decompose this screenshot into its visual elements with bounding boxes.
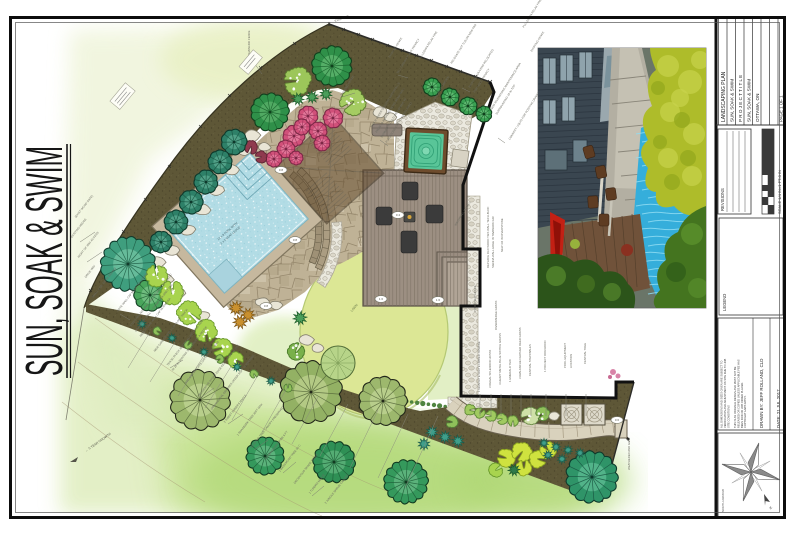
svg-text:3 AVALANCHE FEATHER REED GRASS: 3 AVALANCHE FEATHER REED GRASS [518, 327, 522, 379]
svg-text:DRAWN BY: JEFF ROLLAND, CLD: DRAWN BY: JEFF ROLLAND, CLD [759, 359, 764, 428]
svg-text:REVISIONS: REVISIONS [720, 188, 725, 211]
svg-text:SUN, SOAK & SWIM: SUN, SOAK & SWIM [16, 146, 74, 376]
svg-text:LANDSCAPING PLAN: LANDSCAPING PLAN [721, 71, 727, 122]
svg-text:POOL EQUIPMENT: POOL EQUIPMENT [563, 343, 567, 368]
svg-text:CENTRAL STEPPABLES: CENTRAL STEPPABLES [528, 344, 532, 376]
svg-text:1 EMERALD YEW: 1 EMERALD YEW [508, 359, 512, 382]
svg-text:SUN, SOAK & SWIM: SUN, SOAK & SWIM [747, 79, 752, 122]
svg-text:OTTAWA, ON: OTTAWA, ON [755, 94, 760, 122]
svg-text:REPLACE OLD WOOD TIES WALL TEC: REPLACE OLD WOOD TIES WALL TECH-BLOC [486, 207, 490, 268]
svg-text:THIS IS AN ORIGINAL DESIGN AND: THIS IS AN ORIGINAL DESIGN AND MUST NOT … [733, 366, 737, 428]
svg-text:1 GRAPHITE-WHITE LIMBER JASMIN: 1 GRAPHITE-WHITE LIMBER JASMINE [477, 341, 481, 392]
svg-text:1 6: 1 6 [436, 298, 441, 302]
svg-text:BEEN PAID OR JOB ORDER PLACED.: BEEN PAID OR JOB ORDER PLACED. [740, 382, 744, 428]
svg-text:NORTH ARROW: NORTH ARROW [721, 489, 725, 512]
svg-text:COPYRIGHT LAWS APPLY.: COPYRIGHT LAWS APPLY. [743, 395, 747, 428]
svg-text:3 REGAL SPLENDOR HOSTA: 3 REGAL SPLENDOR HOSTA [488, 350, 492, 388]
svg-text:0 8: 0 8 [264, 304, 269, 308]
svg-text:SUN, SOAK & SWIM: SUN, SOAK & SWIM [730, 79, 735, 122]
svg-text:0 6: 0 6 [615, 418, 620, 422]
svg-text:PROPOSED GRADE: PROPOSED GRADE [473, 285, 477, 312]
svg-text:4 HEAVY METAL BLUE SWITCH GRAS: 4 HEAVY METAL BLUE SWITCH GRASS [498, 333, 502, 385]
svg-text:1 6: 1 6 [379, 297, 384, 301]
svg-text:LOCATION: LOCATION [569, 354, 573, 368]
svg-text:P R O J E C T T I T L E: P R O J E C T T I T L E [738, 75, 743, 122]
svg-text:0 4: 0 4 [396, 213, 401, 217]
svg-text:CENTRAL TREE: CENTRAL TREE [583, 343, 587, 364]
svg-text:RELEASED OR COPIED UNLESS APPL: RELEASED OR COPIED UNLESS APPLICABLE FEE… [736, 359, 740, 428]
svg-text:NEW 3/4 IN RIVERSTONE: NEW 3/4 IN RIVERSTONE [500, 218, 504, 252]
svg-text:LEGEND: LEGEND [722, 294, 727, 311]
svg-text:ALL DIMENSIONS AND SIZES GIVEN: ALL DIMENSIONS AND SIZES GIVEN ARE SUBJE… [720, 361, 724, 428]
svg-text:DATE: 21 JUL 2017: DATE: 21 JUL 2017 [776, 389, 781, 428]
svg-text:VERIFICATION AND ADJUSTMENT ON: VERIFICATION AND ADJUSTMENT ON SITE DUE … [723, 358, 727, 428]
svg-text:0 8: 0 8 [279, 168, 284, 172]
svg-text:SITE CONDITIONS: SITE CONDITIONS [726, 405, 730, 428]
svg-text:WEATHERED AND GATE: WEATHERED AND GATE [627, 437, 631, 470]
svg-text:0 8: 0 8 [293, 238, 298, 242]
svg-text:SIENNA WALL EDGE IN TAVANARK G: SIENNA WALL EDGE IN TAVANARK GIR [491, 216, 495, 268]
svg-text:1 PROJECT DOGWOOD: 1 PROJECT DOGWOOD [543, 341, 547, 373]
svg-text:RIVERMEDGE GRASS: RIVERMEDGE GRASS [494, 300, 498, 330]
